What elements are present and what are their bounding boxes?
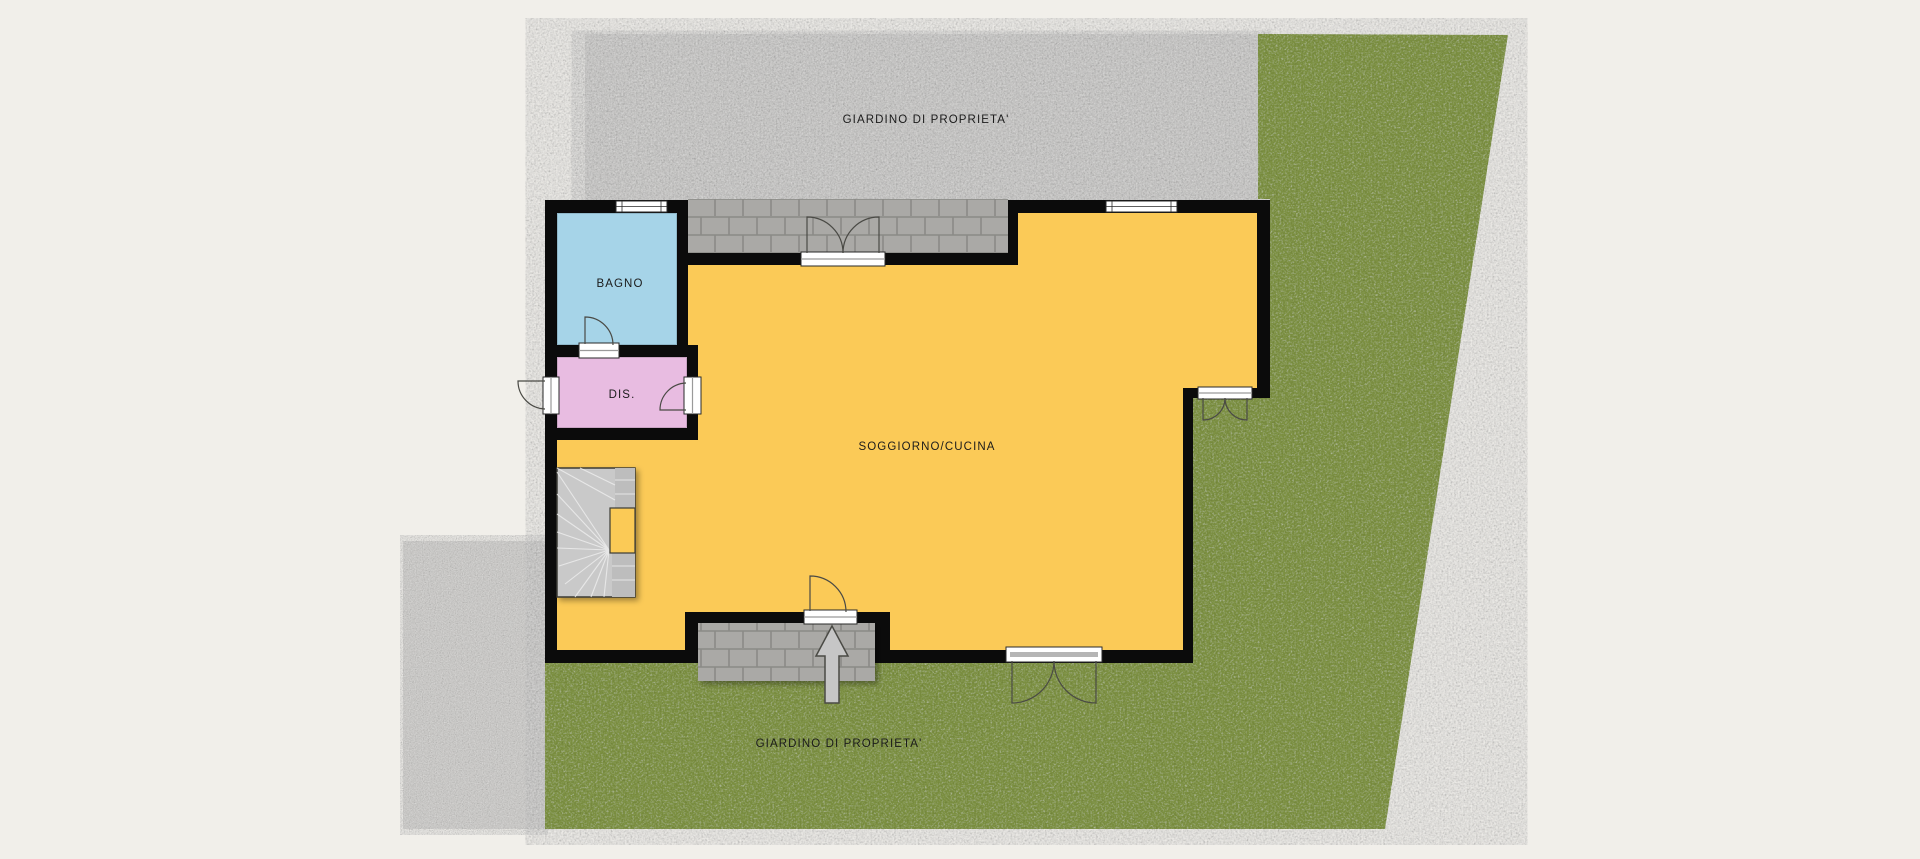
label-living-kitchen: SOGGIORNO/CUCINA xyxy=(858,441,995,453)
staircase xyxy=(557,468,635,597)
staircase-notch xyxy=(610,508,635,553)
window-bathroom xyxy=(616,201,667,212)
paved-entry-porch xyxy=(698,623,875,681)
window-top-right xyxy=(1106,201,1177,212)
label-garden-bottom: GIARDINO DI PROPRIETA' xyxy=(756,738,923,750)
floor-plan: GIARDINO DI PROPRIETA' GIARDINO DI PROPR… xyxy=(0,0,1920,859)
paved-terrace-top xyxy=(688,199,1008,253)
garden-gravel-bottom-left xyxy=(403,541,545,829)
floor-plan-canvas: GIARDINO DI PROPRIETA' GIARDINO DI PROPR… xyxy=(0,0,1920,859)
label-hallway: DIS. xyxy=(609,389,636,401)
label-garden-top: GIARDINO DI PROPRIETA' xyxy=(843,114,1010,126)
door-hallway-exterior xyxy=(518,377,559,414)
label-bathroom: BAGNO xyxy=(596,278,643,290)
